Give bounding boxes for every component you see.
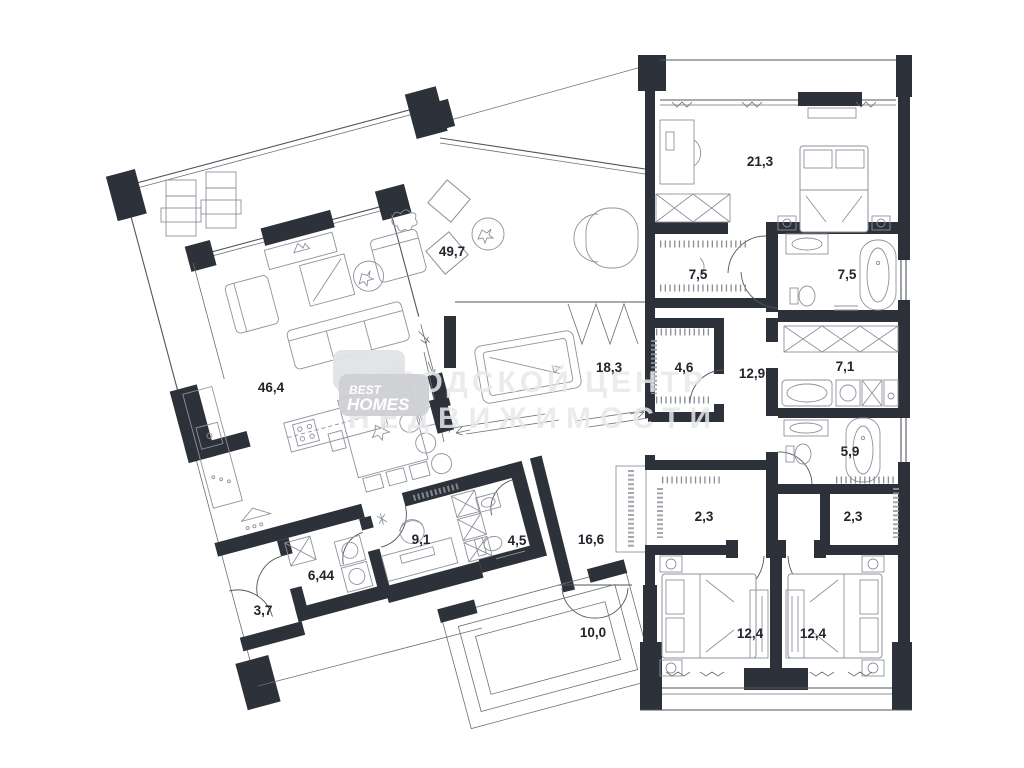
room-label-billiard: 18,3 — [596, 360, 623, 375]
room-label-master-bedroom: 21,3 — [747, 154, 774, 169]
room-label-closet-46: 4,6 — [675, 360, 694, 375]
room-label-wardrobe-75: 7,5 — [689, 267, 708, 282]
room-label-terrace: 49,7 — [439, 244, 465, 259]
room-label-vestibule: 3,7 — [254, 603, 273, 618]
room-label-utility: 6,44 — [308, 568, 335, 583]
room-label-bath-75: 7,5 — [838, 267, 857, 282]
room-label-living-kitchen: 46,4 — [258, 380, 285, 395]
central-terrace — [421, 66, 645, 274]
brand-logo: BEST HOMES — [333, 350, 429, 416]
room-label-office: 9,1 — [412, 532, 431, 547]
room-label-hallway-129: 12,9 — [739, 366, 765, 381]
room-label-bath-59: 5,9 — [841, 444, 860, 459]
bathroom-59-fixtures — [784, 418, 880, 482]
room-label-bedroom-left: 12,4 — [737, 626, 764, 641]
room-label-wc: 4,5 — [508, 533, 527, 548]
room-label-laundry-71: 7,1 — [836, 359, 855, 374]
room-label-closet-23-left: 2,3 — [695, 509, 714, 524]
logo-text-homes: HOMES — [347, 395, 410, 414]
floor-plan-page: ГОРОДСКОЙ ЦЕНТР НЕДВИЖИМОСТИ BEST HOMES … — [0, 0, 1024, 768]
room-label-closet-23-right: 2,3 — [844, 509, 863, 524]
sun-loungers — [161, 172, 241, 236]
room-label-porch: 10,0 — [580, 625, 606, 640]
room-label-hall-166: 16,6 — [578, 532, 605, 547]
floor-plan-drawing: ГОРОДСКОЙ ЦЕНТР НЕДВИЖИМОСТИ BEST HOMES … — [0, 0, 1024, 768]
bedroom-right-furniture — [786, 556, 884, 676]
room-label-bedroom-right: 12,4 — [800, 626, 827, 641]
bedroom-left-furniture — [660, 556, 768, 676]
